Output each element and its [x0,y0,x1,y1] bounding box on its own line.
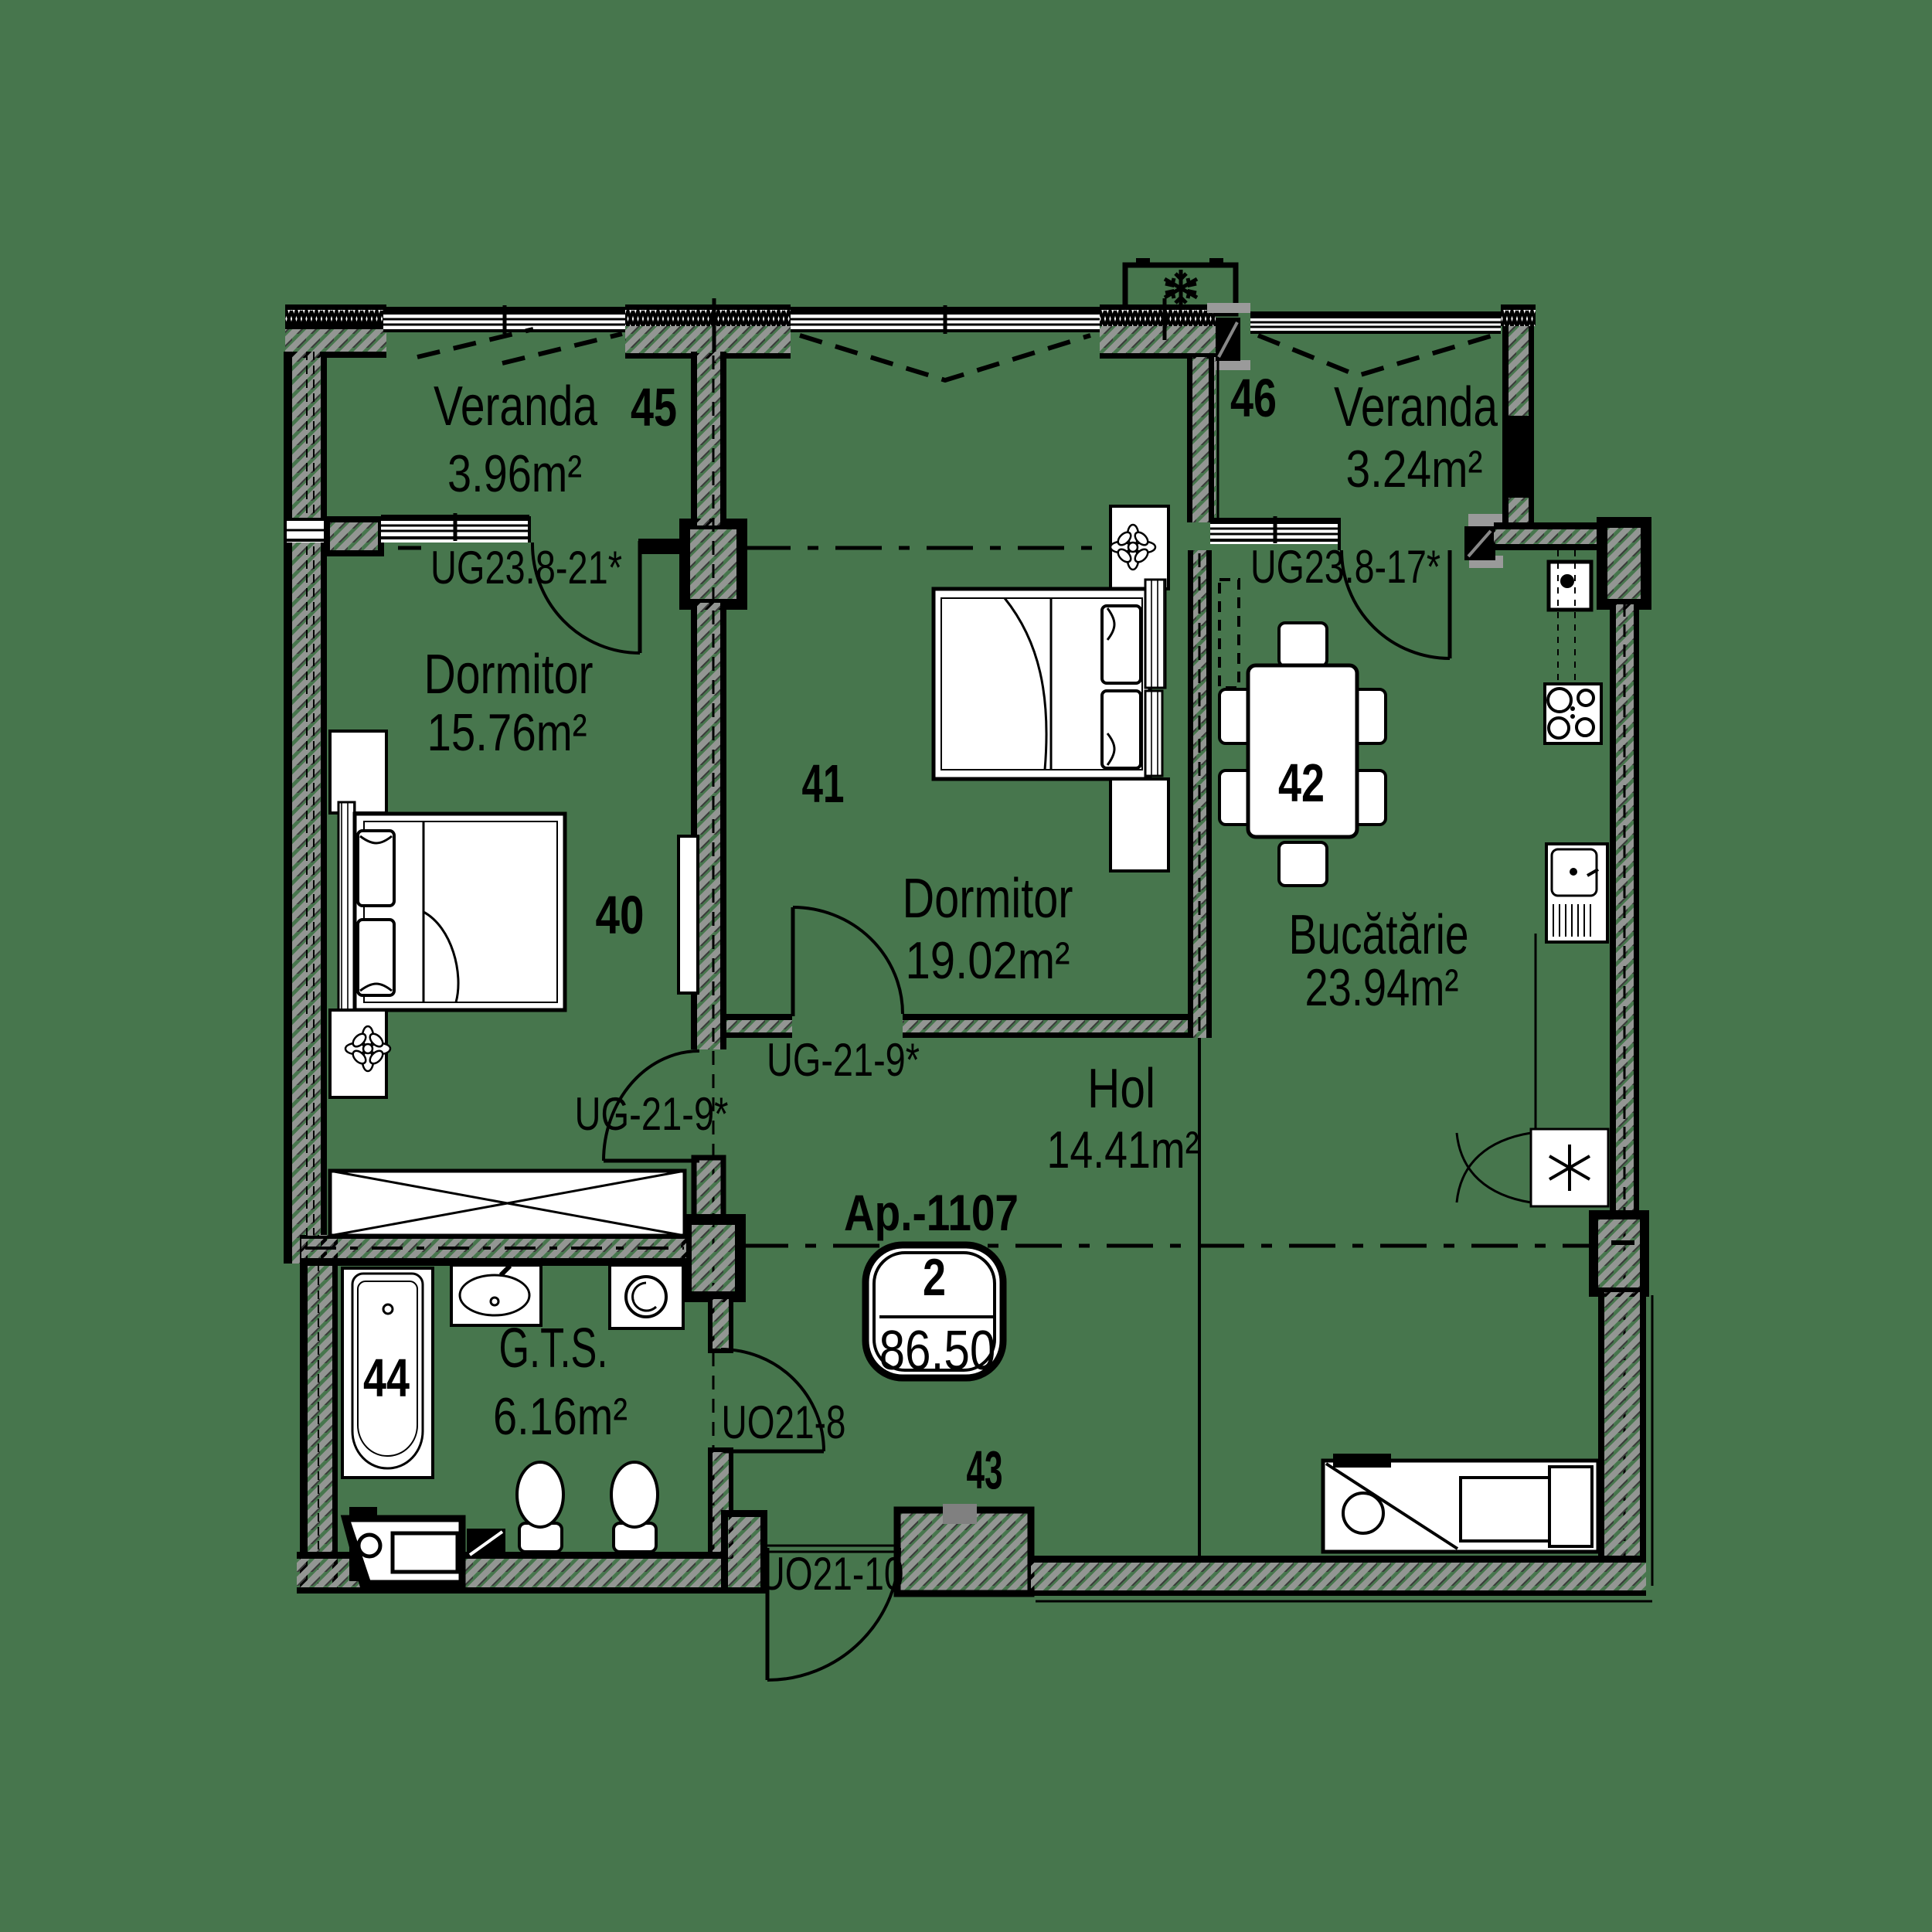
svg-text:2: 2 [923,1248,946,1307]
svg-text:86.50: 86.50 [879,1320,996,1382]
svg-text:G.T.S.: G.T.S. [499,1318,608,1379]
svg-text:UG23.8-17*: UG23.8-17* [1250,541,1440,593]
svg-text:Veranda: Veranda [434,376,598,437]
svg-text:19.02m²: 19.02m² [906,931,1070,990]
svg-text:UO21-8: UO21-8 [722,1396,846,1448]
svg-text:41: 41 [802,753,845,814]
svg-text:UG-21-9*: UG-21-9* [767,1034,920,1086]
svg-text:40: 40 [596,885,645,945]
svg-text:Bucătărie: Bucătărie [1289,904,1469,966]
svg-text:14.41m²: 14.41m² [1047,1121,1199,1179]
svg-text:43: 43 [967,1440,1003,1500]
svg-text:UG23.8-21*: UG23.8-21* [430,542,622,594]
svg-text:UO21-10: UO21-10 [760,1548,904,1600]
svg-text:3.24m²: 3.24m² [1346,440,1483,498]
svg-text:6.16m²: 6.16m² [493,1387,628,1446]
svg-text:UG-21-9*: UG-21-9* [575,1088,729,1140]
svg-text:Dormitor: Dormitor [424,644,594,706]
svg-text:Dormitor: Dormitor [903,868,1073,930]
svg-text:3.96m²: 3.96m² [447,444,582,503]
svg-text:46: 46 [1230,368,1277,428]
svg-text:15.76m²: 15.76m² [427,703,587,762]
svg-text:44: 44 [363,1348,410,1408]
svg-text:42: 42 [1278,753,1325,813]
svg-text:Hol: Hol [1087,1058,1155,1120]
svg-text:Veranda: Veranda [1334,376,1498,438]
svg-text:23.94m²: 23.94m² [1305,958,1459,1017]
svg-text:Ap.-1107: Ap.-1107 [844,1184,1019,1241]
svg-text:45: 45 [631,377,677,437]
